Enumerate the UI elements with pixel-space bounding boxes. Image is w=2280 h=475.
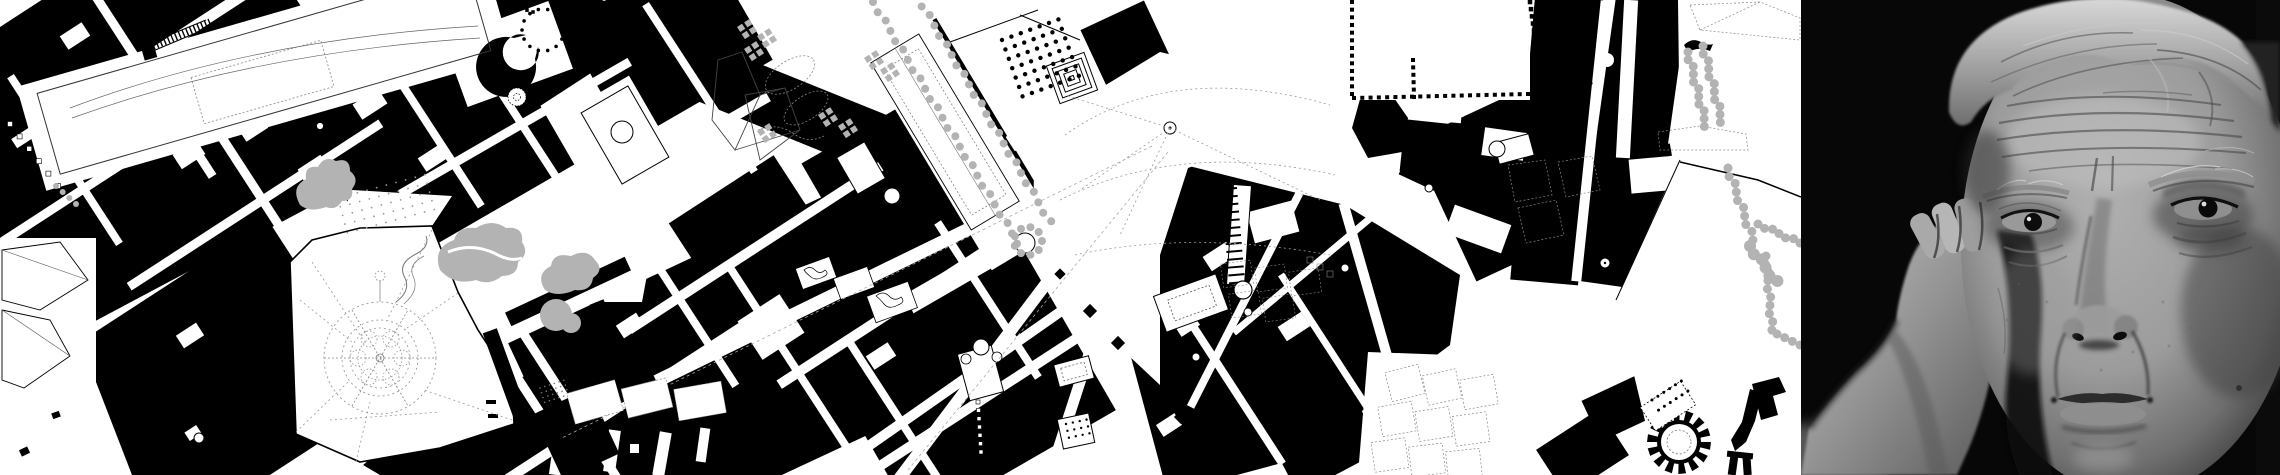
portrait-drawing — [1801, 0, 2280, 475]
portrait-photo — [1801, 0, 2280, 475]
map-drawing — [0, 0, 1801, 475]
figure-ground-map — [0, 0, 1801, 475]
collage-canvas — [0, 0, 2280, 475]
